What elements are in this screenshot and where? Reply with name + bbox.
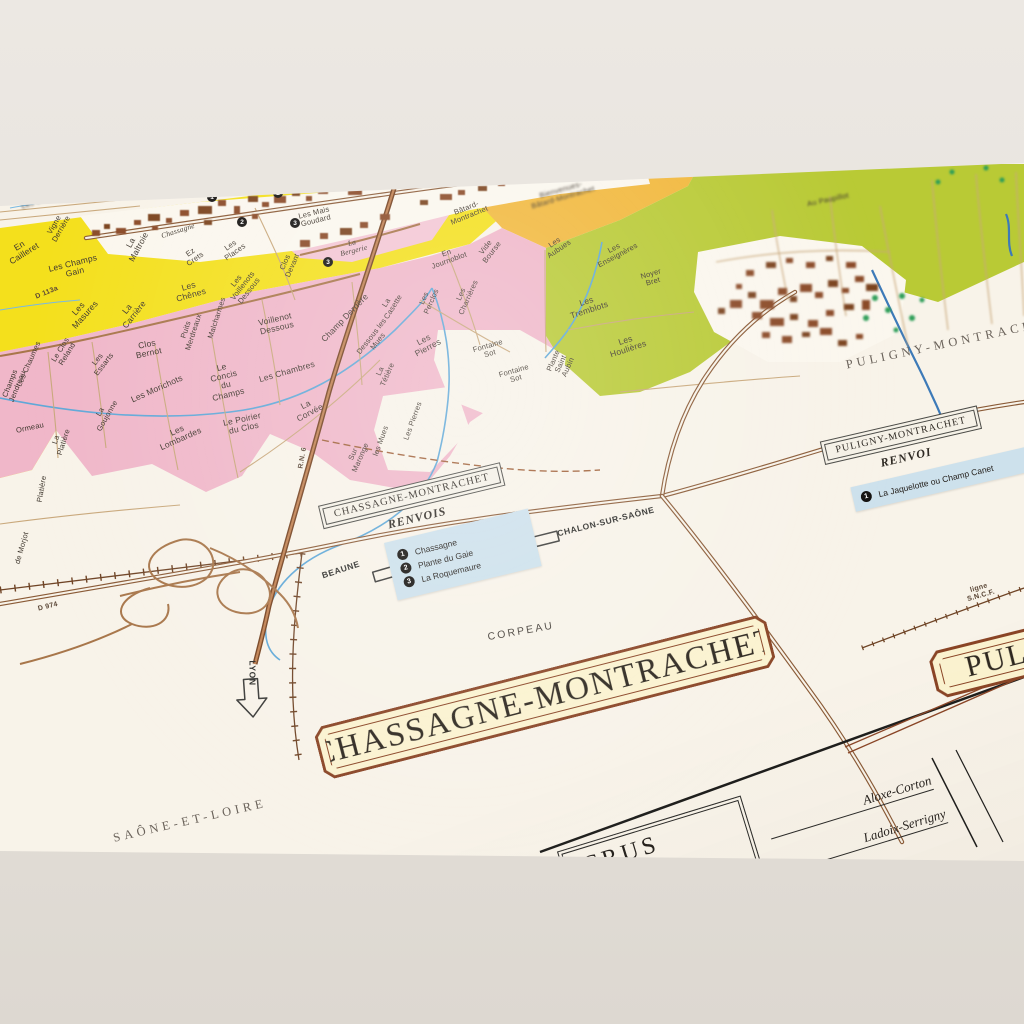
map-label: R.N. 6 (297, 447, 308, 470)
map-label: Les Chambres (258, 360, 316, 385)
map-label: Malcharmes (207, 296, 228, 339)
map-label: En Journoblot (428, 243, 468, 271)
map-label: Clos Devant (277, 249, 302, 278)
renvoi-marker: 3 (323, 257, 333, 267)
map-label: Les Aubues (541, 232, 572, 260)
map-label: Ormeau (15, 421, 44, 435)
map-label: Les Chaumes (15, 340, 42, 388)
map-label: La Maltroie (119, 227, 150, 264)
map-label: Le Clos Reland (50, 336, 78, 367)
renvoi-marker: 4 (80, 188, 90, 198)
map-label: Ez Crets (181, 244, 206, 268)
map-label: Les Enseignères (593, 235, 639, 270)
map-label: CORPEAU (487, 621, 555, 644)
map-label: Les Places (219, 236, 248, 263)
map-label: Les Masures (64, 293, 100, 331)
legend-item-number: 3 (403, 575, 416, 588)
map-label: SAÔNE-ET-LOIRE (112, 797, 268, 845)
map-label: Noyer Bret (640, 267, 665, 288)
map-label: Les Perclos (415, 285, 441, 316)
map-label: Les Houlières (606, 330, 648, 359)
map-label: Le Poirier du Clos (222, 411, 263, 437)
map-label: PULIGNY-MONTRACHET (845, 314, 1024, 372)
map-label: Platière (36, 475, 49, 503)
map-label: La Carrière (114, 294, 148, 331)
map-label: Les Morichots (130, 374, 184, 405)
renvoi-marker: 1 (247, 173, 257, 183)
map-label: Le Concis du Champs (205, 359, 246, 403)
map-label: Champ Derrière (320, 292, 371, 344)
map-label: Clos Bernot (133, 337, 162, 360)
map-label: Voillenot Dessous (257, 311, 295, 337)
map-label: 300 (1, 188, 16, 199)
map-label: Les Lombardes (155, 418, 203, 453)
renvoi-marker: 3 (290, 218, 300, 228)
map-label: D 113a (34, 285, 59, 301)
map-label: Les Charrières (450, 276, 480, 316)
map-label: Au Paupillot (806, 192, 849, 209)
renvoi-marker: 1 (207, 192, 217, 202)
map-label: La Corvée (291, 394, 325, 424)
map-label: Fontaine Sot (472, 338, 506, 362)
map-label: Les Chênes (173, 278, 207, 304)
map-label: Vigne Derrière (44, 211, 72, 244)
map-photo: En CailleretVigne DerrièreLes Champs Gai… (0, 0, 1024, 1024)
map-label: Puits Merdreaux (176, 311, 203, 352)
map-label: La Bergerie (338, 236, 369, 258)
map-label: Sur Maronge (343, 439, 370, 474)
renvoi-marker: 2 (273, 188, 283, 198)
map-label: Chassagne (160, 222, 196, 240)
map-label: Fontaine Sot (498, 363, 532, 387)
map-label: Les Combards (20, 187, 71, 211)
map-label: Les Tremblots (566, 291, 609, 321)
map-label: Vide Bourse (475, 235, 503, 265)
map-label: La Tétière (372, 358, 397, 387)
map-paper-sheet: En CailleretVigne DerrièreLes Champs Gai… (0, 0, 1024, 1024)
map-label: Les Essarts (86, 347, 115, 378)
map-label: D 974 (37, 601, 58, 613)
map-label: LYON (247, 660, 256, 685)
map-label: Les Voillenots Dessous (223, 265, 263, 307)
map-label: En Cailleret (3, 233, 41, 266)
map-label: La Goujonne (88, 395, 119, 433)
renvoi-marker: 2 (237, 217, 247, 227)
legend-item-number: 2 (399, 561, 412, 574)
map-label: Les Pierres (409, 329, 443, 358)
map-label: Bienvenues- Bâtard-Montrachet (528, 177, 595, 211)
map-label: les Mues (372, 425, 390, 457)
map-label: La Platière (48, 426, 72, 457)
map-label: CHALON-SUR-SAÔNE (556, 505, 655, 538)
map-label: Les Pierres (402, 401, 423, 441)
legend-item-number: 1 (860, 490, 873, 503)
map-label: de Morjot (14, 531, 31, 565)
map-label: Dessous les Mues (355, 317, 394, 361)
map-label: Plante Saint Aubin (545, 349, 576, 379)
map-label: Bâtard- Montrachet (447, 197, 490, 227)
map-label: Les Champs Gain (48, 253, 101, 283)
map-label: ligne S.N.C.F. (957, 579, 1003, 606)
legend-item-number: 1 (396, 548, 409, 561)
map-label: Les Mais Goudard (298, 205, 333, 228)
